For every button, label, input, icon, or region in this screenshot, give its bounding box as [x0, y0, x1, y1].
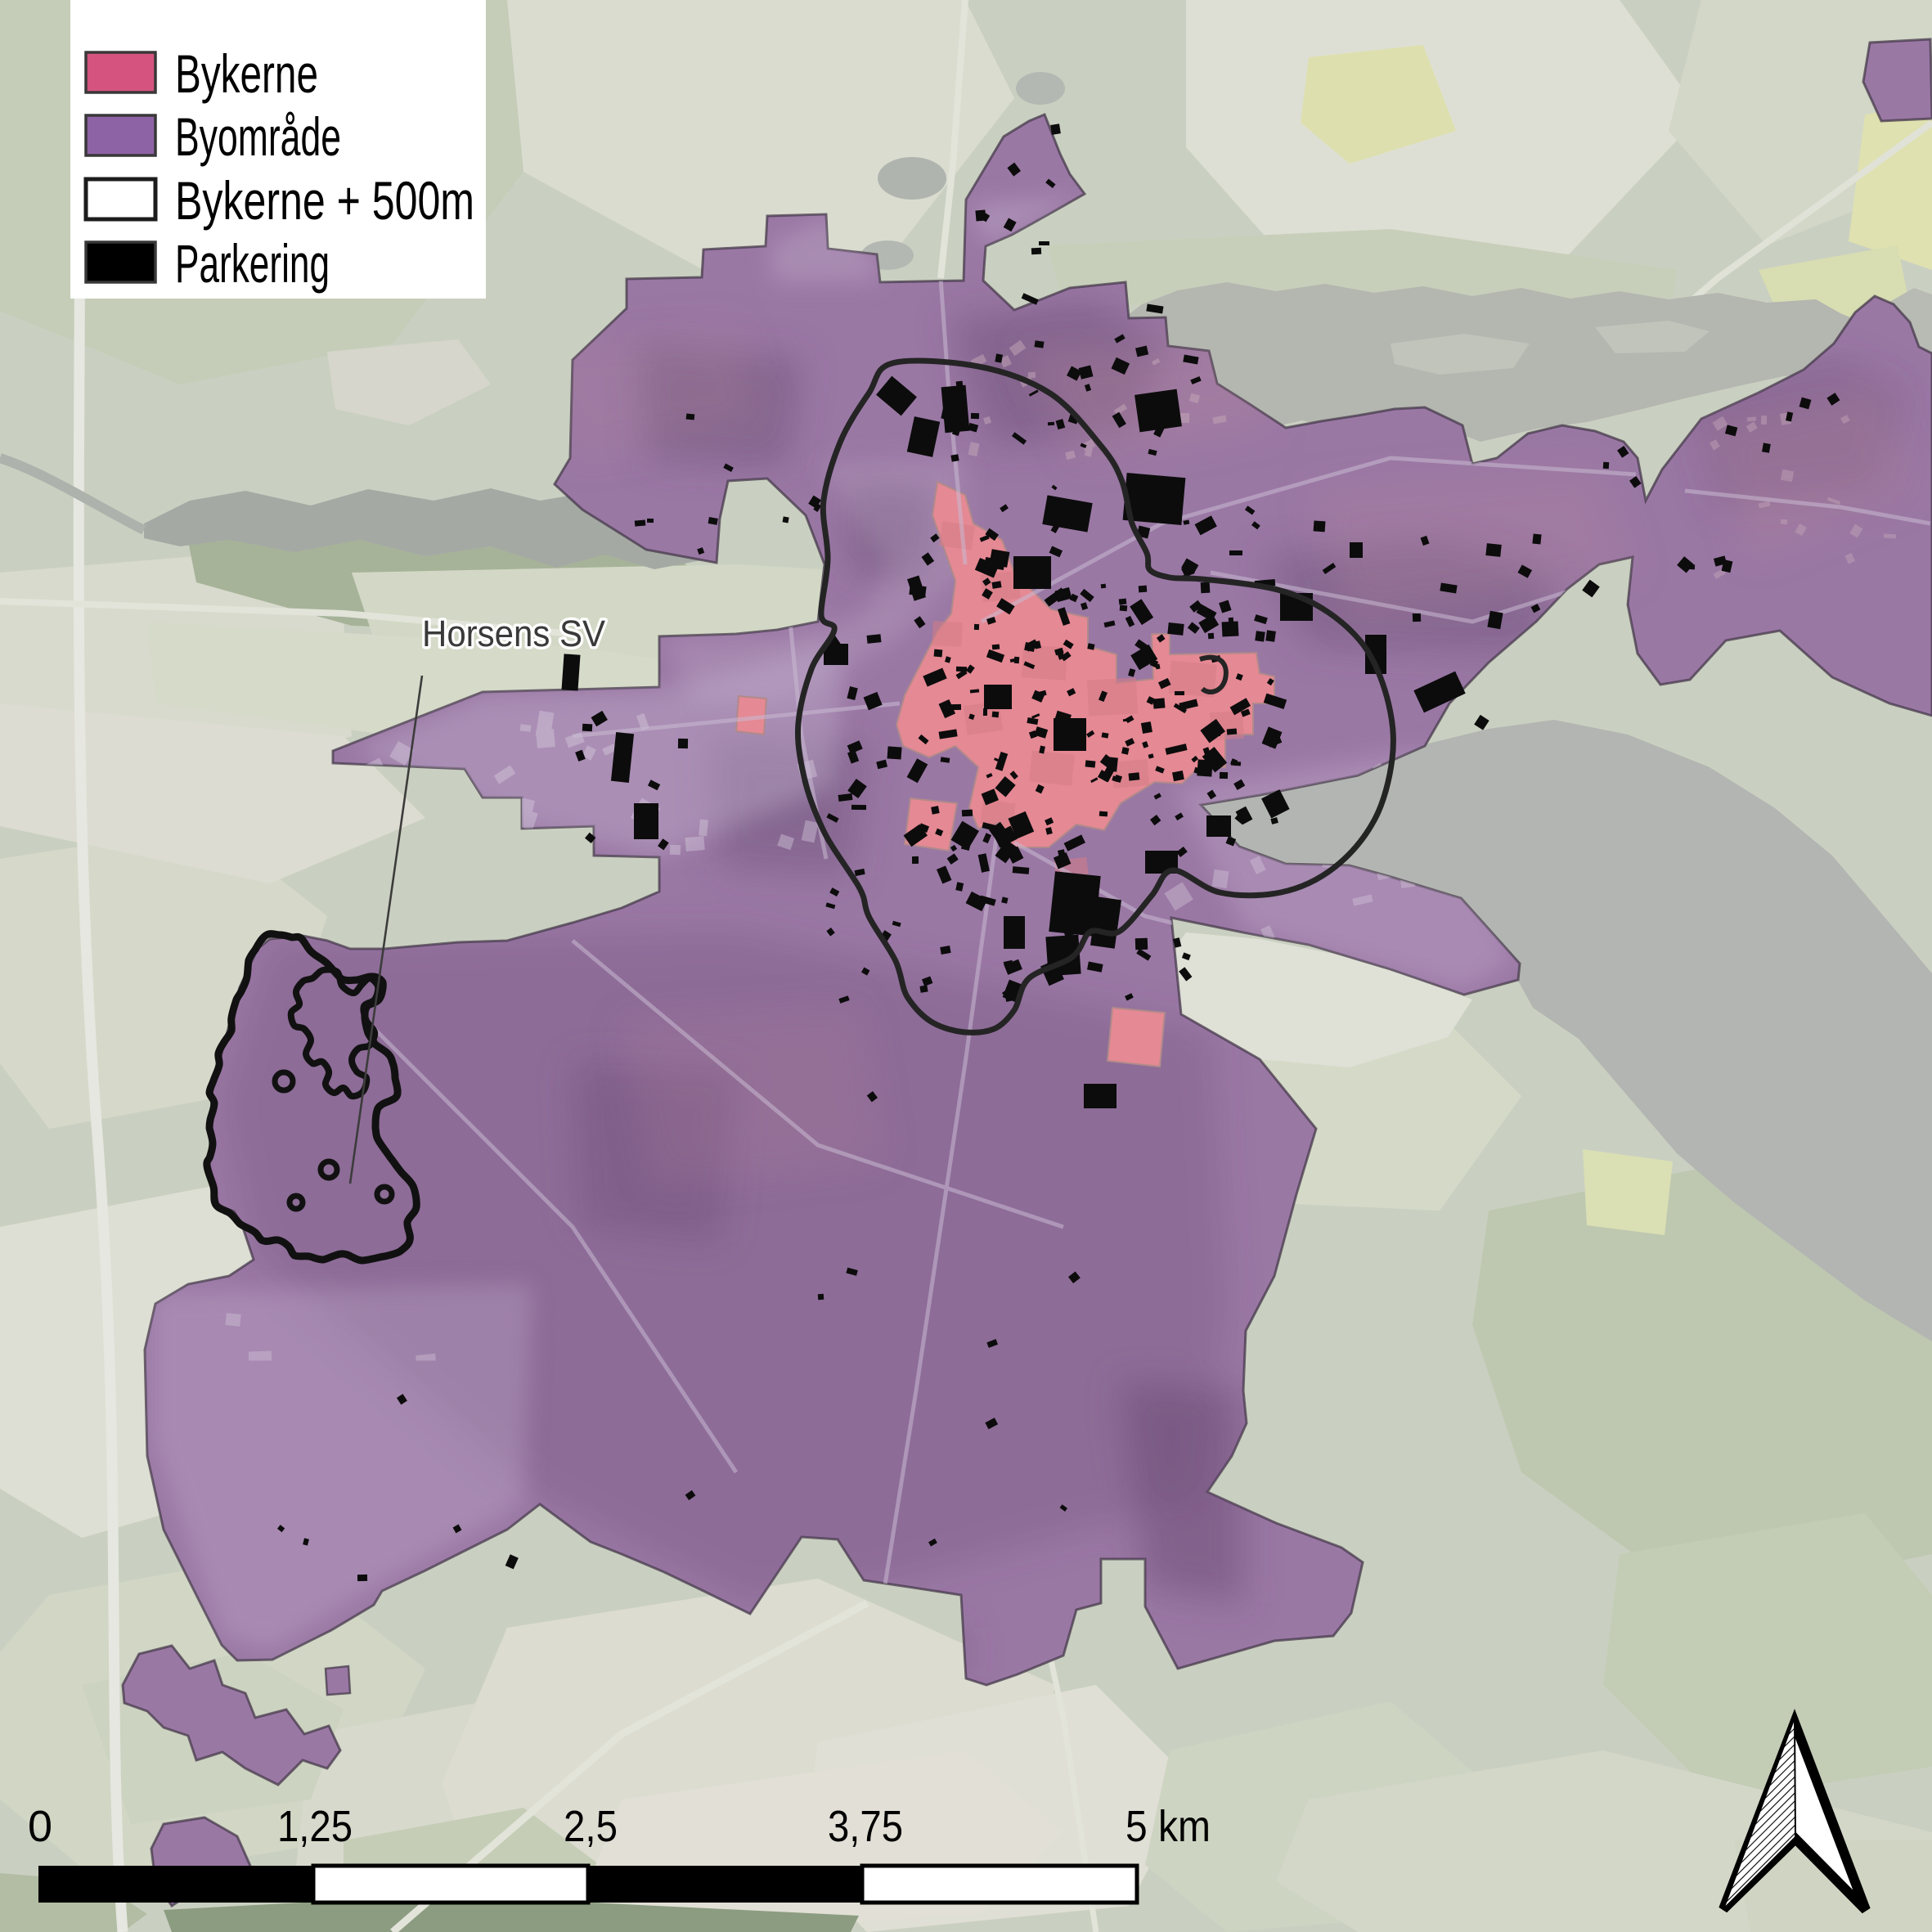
svg-text:1,25: 1,25 — [277, 1802, 353, 1851]
svg-text:Horsens SV: Horsens SV — [422, 613, 605, 654]
svg-text:2,5: 2,5 — [564, 1802, 618, 1851]
svg-text:0: 0 — [28, 1802, 52, 1851]
svg-text:Bykerne: Bykerne — [175, 43, 318, 104]
svg-text:Byområde: Byområde — [175, 106, 341, 167]
svg-text:Parkering: Parkering — [175, 233, 330, 294]
svg-text:3,75: 3,75 — [828, 1802, 903, 1851]
svg-text:Bykerne + 500m: Bykerne + 500m — [175, 170, 474, 231]
svg-text:5 km: 5 km — [1126, 1802, 1211, 1851]
